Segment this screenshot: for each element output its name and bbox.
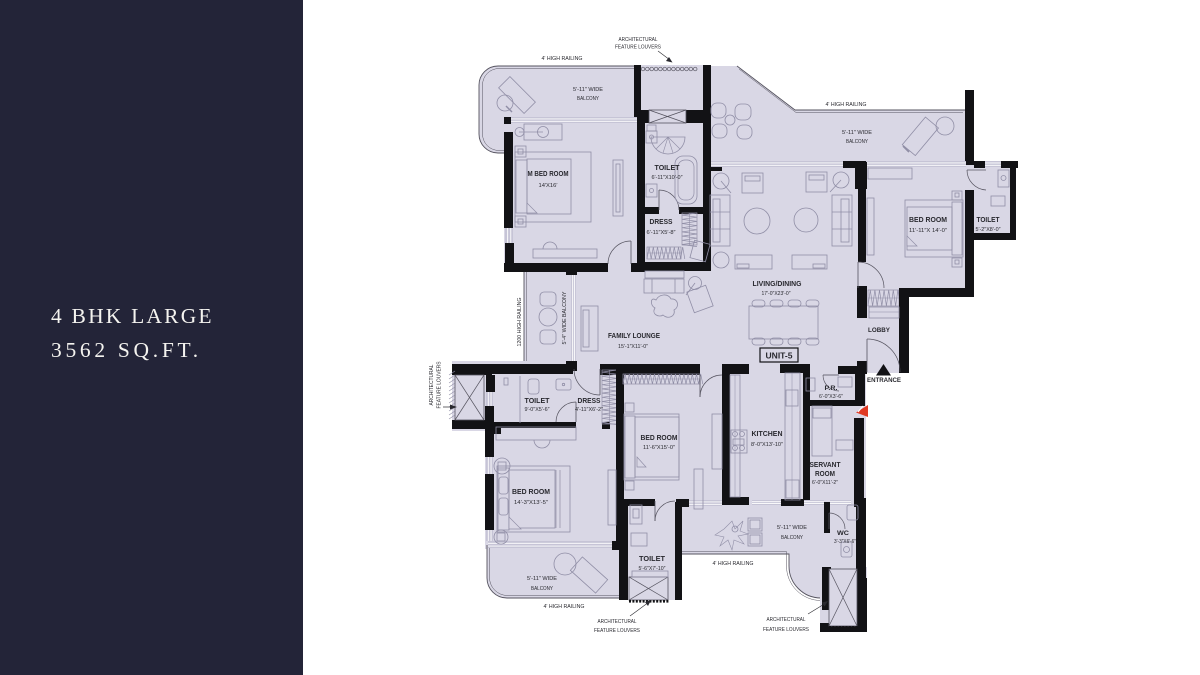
svg-text:BED ROOM: BED ROOM xyxy=(512,489,550,496)
svg-text:FEATURE LOUVERS: FEATURE LOUVERS xyxy=(437,361,443,409)
svg-text:4' HIGH RAILING: 4' HIGH RAILING xyxy=(826,102,867,108)
svg-text:LOBBY: LOBBY xyxy=(868,327,891,334)
svg-text:DRESS: DRESS xyxy=(578,398,601,405)
svg-text:BALCONY: BALCONY xyxy=(781,535,803,541)
svg-text:5′-2″X8′-0″: 5′-2″X8′-0″ xyxy=(976,227,1001,233)
svg-text:5′-6″X7′-10″: 5′-6″X7′-10″ xyxy=(639,566,666,572)
svg-text:ARCHITECTURAL: ARCHITECTURAL xyxy=(619,37,659,43)
svg-text:4′-11″X6′-2″: 4′-11″X6′-2″ xyxy=(575,407,603,413)
svg-text:ROOM: ROOM xyxy=(815,471,835,478)
svg-text:1200 HIGH RAILING: 1200 HIGH RAILING xyxy=(517,297,523,346)
svg-text:BALCONY: BALCONY xyxy=(846,139,868,145)
svg-text:SERVANT: SERVANT xyxy=(810,462,842,469)
svg-text:P.R.: P.R. xyxy=(825,385,838,392)
svg-text:ARCHITECTURAL: ARCHITECTURAL xyxy=(767,617,807,623)
svg-text:6′-11″X10′-0″: 6′-11″X10′-0″ xyxy=(652,175,683,181)
svg-text:9′-0″X5′-6″: 9′-0″X5′-6″ xyxy=(525,407,550,413)
svg-text:FEATURE LOUVERS: FEATURE LOUVERS xyxy=(594,628,640,634)
svg-text:4' HIGH RAILING: 4' HIGH RAILING xyxy=(544,604,585,610)
svg-text:11′-11″X 14′-0″: 11′-11″X 14′-0″ xyxy=(909,228,947,234)
svg-text:15′-1″X11′-0″: 15′-1″X11′-0″ xyxy=(618,344,648,350)
svg-text:8′-0″X13′-10″: 8′-0″X13′-10″ xyxy=(751,442,783,448)
svg-text:BALCONY: BALCONY xyxy=(531,586,553,592)
svg-text:BALCONY: BALCONY xyxy=(577,96,599,102)
svg-text:4' HIGH RAILING: 4' HIGH RAILING xyxy=(542,56,583,62)
svg-text:5'-11″ WIDE: 5'-11″ WIDE xyxy=(527,576,557,582)
svg-text:5'-4″ WIDE BALCONY: 5'-4″ WIDE BALCONY xyxy=(562,291,568,345)
svg-text:11′-6″X15′-0″: 11′-6″X15′-0″ xyxy=(643,445,675,451)
svg-text:17′-0″X23′-0″: 17′-0″X23′-0″ xyxy=(762,291,791,297)
svg-text:UNIT-5: UNIT-5 xyxy=(766,351,793,361)
svg-text:ENTRANCE: ENTRANCE xyxy=(867,377,902,384)
svg-text:KITCHEN: KITCHEN xyxy=(752,431,783,438)
svg-text:BED ROOM: BED ROOM xyxy=(909,217,947,224)
svg-text:TOILET: TOILET xyxy=(639,556,666,563)
svg-text:LIVING/DINING: LIVING/DINING xyxy=(753,281,803,288)
svg-text:4' HIGH RAILING: 4' HIGH RAILING xyxy=(713,561,754,567)
svg-text:M BED ROOM: M BED ROOM xyxy=(528,171,569,178)
svg-text:BED ROOM: BED ROOM xyxy=(641,435,678,442)
svg-text:6′-11″X5′-8″: 6′-11″X5′-8″ xyxy=(647,230,676,236)
svg-text:TOILET: TOILET xyxy=(525,398,551,405)
svg-text:3562 SQ.FT.: 3562 SQ.FT. xyxy=(51,338,202,362)
svg-text:FAMILY LOUNGE: FAMILY LOUNGE xyxy=(608,333,660,340)
svg-text:3′-3″X6′-6″: 3′-3″X6′-6″ xyxy=(834,539,856,545)
svg-text:DRESS: DRESS xyxy=(650,219,673,226)
svg-text:6′-0″X3′-6″: 6′-0″X3′-6″ xyxy=(819,394,843,400)
svg-text:5'-11″ WIDE: 5'-11″ WIDE xyxy=(842,130,872,136)
svg-text:ARCHITECTURAL: ARCHITECTURAL xyxy=(598,619,638,625)
svg-text:WC: WC xyxy=(837,530,849,537)
svg-text:4 BHK LARGE: 4 BHK LARGE xyxy=(51,304,214,328)
svg-text:TOILET: TOILET xyxy=(655,165,681,172)
svg-text:5'-11″ WIDE: 5'-11″ WIDE xyxy=(573,87,603,93)
svg-text:14′X16′: 14′X16′ xyxy=(539,183,558,189)
svg-text:FEATURE LOUVERS: FEATURE LOUVERS xyxy=(763,627,809,633)
svg-text:5'-11″ WIDE: 5'-11″ WIDE xyxy=(777,525,807,531)
svg-text:FEATURE LOUVERS: FEATURE LOUVERS xyxy=(615,45,661,51)
svg-text:ARCHITECTURAL: ARCHITECTURAL xyxy=(429,364,435,405)
svg-text:14′-3″X13′-5″: 14′-3″X13′-5″ xyxy=(514,500,548,506)
svg-text:TOILET: TOILET xyxy=(977,217,1001,224)
svg-text:6′-0″X11′-2″: 6′-0″X11′-2″ xyxy=(812,480,838,486)
